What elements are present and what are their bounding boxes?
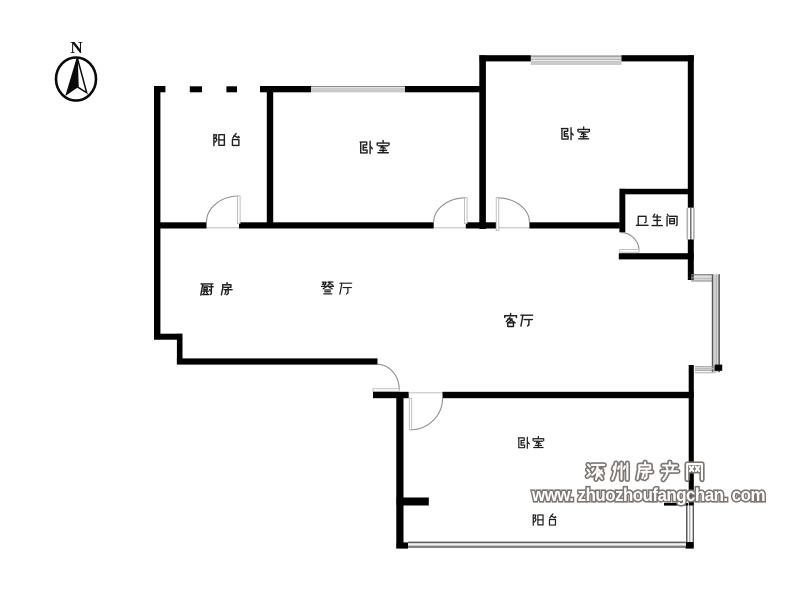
svg-text:N: N — [70, 38, 83, 57]
svg-text:www. zhuozhoufangchan. com: www. zhuozhoufangchan. com — [531, 485, 765, 505]
